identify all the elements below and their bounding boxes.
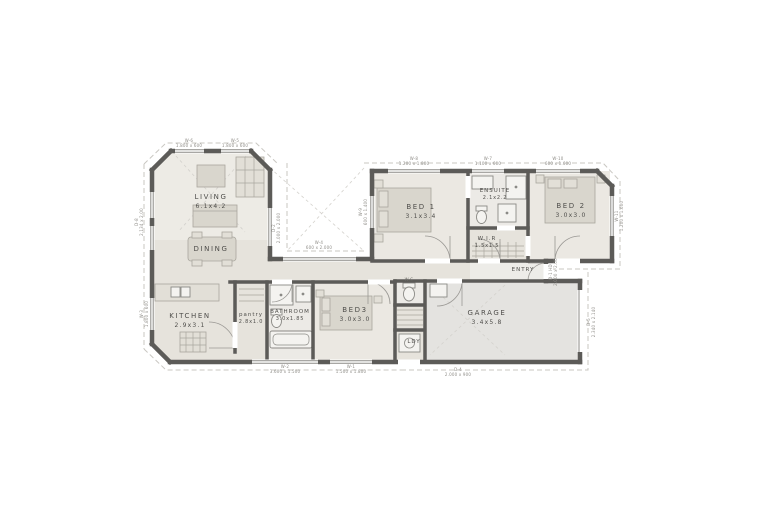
room-size-pantry: 2.8x1.0 bbox=[239, 319, 263, 325]
opening-w7-size: 1.100 x 600 bbox=[475, 161, 501, 166]
toilet-wc bbox=[403, 283, 415, 301]
room-size-bed1: 3.1x3.4 bbox=[405, 213, 436, 220]
opening-w8-size: 1.200 x 1.800 bbox=[399, 161, 430, 166]
opening-w2-size: 3.600 x 1.500 bbox=[270, 369, 301, 374]
room-label-wc: W.C bbox=[405, 277, 414, 282]
room-label-entry: ENTRY bbox=[512, 267, 535, 273]
room-label-ldy: LDY bbox=[407, 339, 420, 345]
room-label-kitchen: KITCHEN bbox=[169, 312, 211, 320]
opening-d2-size: 2.000 x 2.000 bbox=[276, 213, 281, 244]
room-label-dining: DINING bbox=[193, 245, 228, 253]
floor-plan-page: LIVING 6.1x4.2 DINING KITCHEN 2.9x3.1 pa… bbox=[0, 0, 768, 512]
room-size-wir: 1.5x1.5 bbox=[475, 243, 499, 249]
garage-door-opening bbox=[579, 290, 580, 352]
floor-entry-porch bbox=[470, 261, 546, 281]
opening-w9-size: 600 x 1.400 bbox=[363, 199, 368, 225]
room-label-wir: W.I.R bbox=[478, 236, 497, 242]
opening-w6-size: 1.800 x 600 bbox=[176, 143, 202, 148]
opening-d8-size: 2.134 x 2.00 bbox=[139, 208, 144, 236]
room-label-ensuite: ENSUITE bbox=[480, 188, 511, 194]
tv-unit bbox=[197, 165, 225, 187]
room-size-ensuite: 2.1x2.2 bbox=[483, 195, 507, 201]
opening-w4-size: 600 x 2.000 bbox=[306, 245, 332, 250]
room-size-bed3: 3.0x3.0 bbox=[339, 316, 370, 323]
room-size-living: 6.1x4.2 bbox=[195, 203, 226, 210]
opening-d4-size: 2.000 x 900 bbox=[445, 372, 471, 377]
room-label-pantry: pantry bbox=[239, 312, 263, 318]
room-label-garage: GARAGE bbox=[468, 309, 507, 317]
room-size-garage: 3.4x5.8 bbox=[471, 319, 502, 326]
room-label-bathroom: BATHROOM bbox=[270, 309, 310, 315]
bathtub bbox=[270, 331, 312, 348]
opening-w11-size: 1.200 x 1.600 bbox=[619, 201, 624, 232]
opening-d5-size: 2.340 x 2.140 bbox=[591, 307, 596, 338]
room-label-bed2: BED 2 bbox=[556, 202, 585, 210]
room-label-bed1: BED 1 bbox=[406, 203, 435, 211]
toilet-ensuite bbox=[476, 206, 487, 224]
opening-w10-size: 600 x 1.600 bbox=[545, 161, 571, 166]
opening-d1-size: 2.000 x 2.00 bbox=[553, 258, 558, 286]
kitchen-island-mat bbox=[180, 332, 206, 352]
room-size-bathroom: 3.0x1.85 bbox=[276, 316, 304, 322]
kitchen-bench bbox=[155, 284, 219, 301]
opening-w1-size: 1.500 x 1.800 bbox=[336, 369, 367, 374]
hot-water-cylinder bbox=[430, 284, 447, 297]
opening-w3-size: 1.800 x 600 bbox=[144, 301, 149, 327]
floor-plan-drawing: LIVING 6.1x4.2 DINING KITCHEN 2.9x3.1 pa… bbox=[0, 0, 768, 512]
room-label-bed3: BED3 bbox=[342, 306, 367, 314]
room-size-kitchen: 2.9x3.1 bbox=[174, 322, 205, 329]
cabinet-grid bbox=[236, 157, 264, 197]
room-label-living: LIVING bbox=[194, 193, 227, 201]
opening-w5-size: 1.800 x 600 bbox=[222, 143, 248, 148]
room-size-bed2: 3.0x3.0 bbox=[555, 212, 586, 219]
